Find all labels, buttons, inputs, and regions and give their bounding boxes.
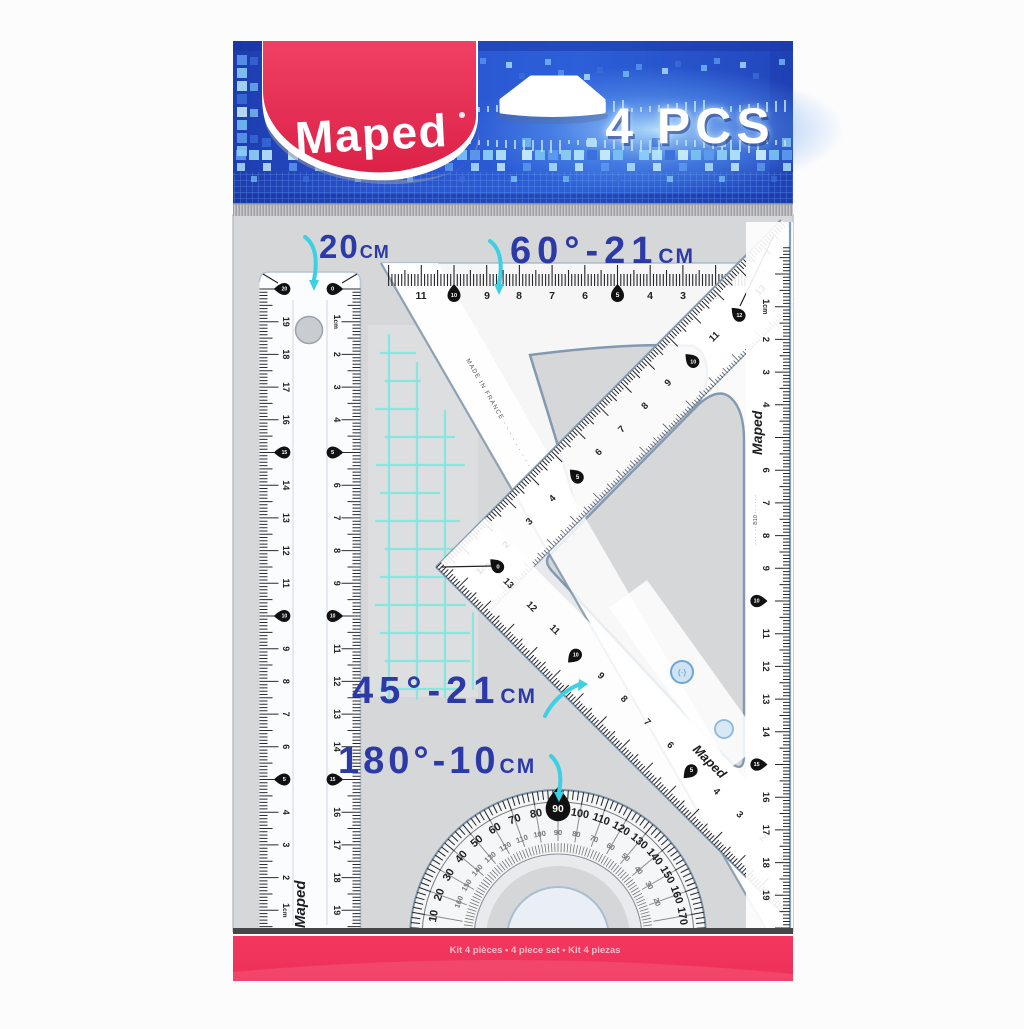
svg-text:10: 10 xyxy=(451,293,457,299)
svg-text:80: 80 xyxy=(571,829,581,839)
svg-text:90: 90 xyxy=(552,804,564,815)
svg-text:5: 5 xyxy=(283,777,286,783)
svg-text:7: 7 xyxy=(760,500,771,505)
svg-text:9: 9 xyxy=(484,290,490,302)
svg-text:18: 18 xyxy=(332,873,342,883)
svg-text:11: 11 xyxy=(332,644,342,654)
svg-text:7: 7 xyxy=(549,290,555,302)
svg-text:17: 17 xyxy=(760,825,771,836)
svg-text:13: 13 xyxy=(760,694,771,705)
svg-text:3: 3 xyxy=(332,385,342,390)
svg-text:8: 8 xyxy=(281,679,291,684)
svg-text:6: 6 xyxy=(582,290,588,302)
svg-text:Maped: Maped xyxy=(749,410,765,455)
svg-text:4: 4 xyxy=(332,417,342,422)
svg-text:13: 13 xyxy=(332,709,342,719)
svg-text:90: 90 xyxy=(554,828,562,837)
svg-text:5: 5 xyxy=(616,292,620,299)
svg-text:12: 12 xyxy=(281,546,291,556)
svg-text:6: 6 xyxy=(332,483,342,488)
svg-text:17: 17 xyxy=(332,840,342,850)
svg-text:5: 5 xyxy=(576,474,580,481)
svg-text:15: 15 xyxy=(330,777,336,783)
svg-text:14: 14 xyxy=(281,480,291,490)
svg-text:(·): (·) xyxy=(678,668,686,677)
svg-text:9: 9 xyxy=(760,566,771,571)
svg-text:2: 2 xyxy=(760,337,771,342)
svg-text:15: 15 xyxy=(754,762,760,768)
svg-text:14: 14 xyxy=(760,727,771,738)
svg-text:Maped: Maped xyxy=(294,104,450,164)
svg-text:12: 12 xyxy=(760,661,771,672)
svg-text:2: 2 xyxy=(281,875,291,880)
svg-text:10: 10 xyxy=(690,359,696,365)
svg-text:5: 5 xyxy=(331,450,334,456)
svg-text:5: 5 xyxy=(690,767,694,774)
svg-text:4 PCS: 4 PCS xyxy=(605,98,775,154)
svg-text:15: 15 xyxy=(282,450,288,456)
svg-text:4: 4 xyxy=(760,402,771,408)
svg-text:18: 18 xyxy=(281,349,291,359)
svg-text:10: 10 xyxy=(754,599,760,605)
svg-text:2: 2 xyxy=(332,352,342,357)
svg-text:0: 0 xyxy=(331,287,334,293)
svg-text:Kit 4 pièces • 4 piece set • K: Kit 4 pièces • 4 piece set • Kit 4 pieza… xyxy=(450,945,621,956)
svg-text:6: 6 xyxy=(760,468,771,473)
svg-text:3: 3 xyxy=(680,290,686,302)
svg-text:18: 18 xyxy=(760,857,771,868)
svg-text:12: 12 xyxy=(736,313,742,319)
svg-text:8: 8 xyxy=(332,548,342,553)
svg-text:· · · · · · B10 · · · · · ·: · · · · · · B10 · · · · · · xyxy=(753,495,759,545)
svg-text:16: 16 xyxy=(281,415,291,425)
svg-text:9: 9 xyxy=(281,646,291,651)
svg-text:6: 6 xyxy=(281,744,291,749)
svg-text:9: 9 xyxy=(332,581,342,586)
svg-text:4: 4 xyxy=(647,290,653,302)
svg-text:3: 3 xyxy=(281,842,291,847)
svg-text:7: 7 xyxy=(332,515,342,520)
svg-text:11: 11 xyxy=(760,629,771,640)
svg-text:16: 16 xyxy=(760,792,771,803)
svg-text:11: 11 xyxy=(415,290,426,302)
svg-text:10: 10 xyxy=(330,614,336,620)
svg-text:19: 19 xyxy=(760,890,771,901)
svg-text:20: 20 xyxy=(282,287,288,293)
svg-text:13: 13 xyxy=(281,513,291,523)
svg-text:11: 11 xyxy=(281,579,291,589)
svg-text:8: 8 xyxy=(516,290,522,302)
svg-text:8: 8 xyxy=(760,533,771,538)
svg-text:7: 7 xyxy=(281,712,291,717)
svg-text:80: 80 xyxy=(529,807,543,821)
svg-text:4: 4 xyxy=(281,810,291,815)
svg-text:17: 17 xyxy=(281,382,291,392)
svg-text:10: 10 xyxy=(573,652,579,658)
svg-text:3: 3 xyxy=(760,369,771,374)
svg-text:10: 10 xyxy=(427,909,441,923)
svg-text:Maped: Maped xyxy=(292,880,309,928)
svg-text:16: 16 xyxy=(332,807,342,817)
svg-text:12: 12 xyxy=(332,676,342,686)
svg-text:10: 10 xyxy=(282,614,288,620)
svg-text:19: 19 xyxy=(281,317,291,327)
svg-text:19: 19 xyxy=(332,905,342,915)
